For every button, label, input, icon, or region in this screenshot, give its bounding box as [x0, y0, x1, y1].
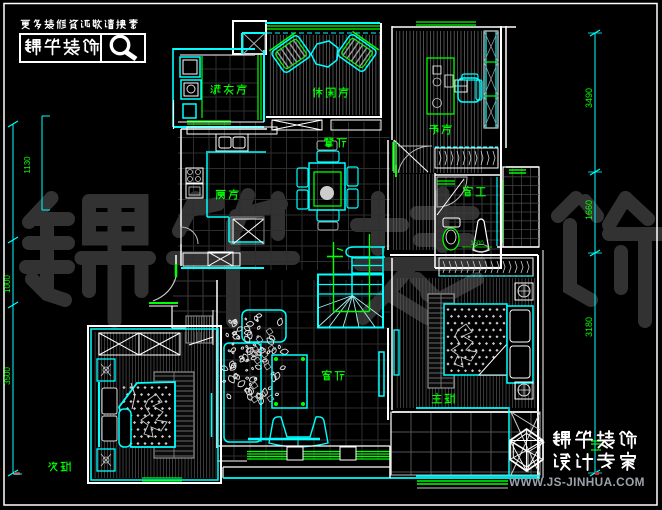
svg-text:WWW.JS-JINHUA.COM: WWW.JS-JINHUA.COM — [509, 475, 645, 489]
svg-text:3180: 3180 — [584, 317, 594, 337]
svg-text:1130: 1130 — [23, 156, 32, 174]
svg-text:1660: 1660 — [584, 200, 594, 220]
svg-text:1000: 1000 — [3, 275, 12, 293]
svg-text:1500: 1500 — [470, 241, 484, 247]
svg-text:3490: 3490 — [584, 88, 594, 108]
svg-text:3500: 3500 — [3, 367, 12, 385]
